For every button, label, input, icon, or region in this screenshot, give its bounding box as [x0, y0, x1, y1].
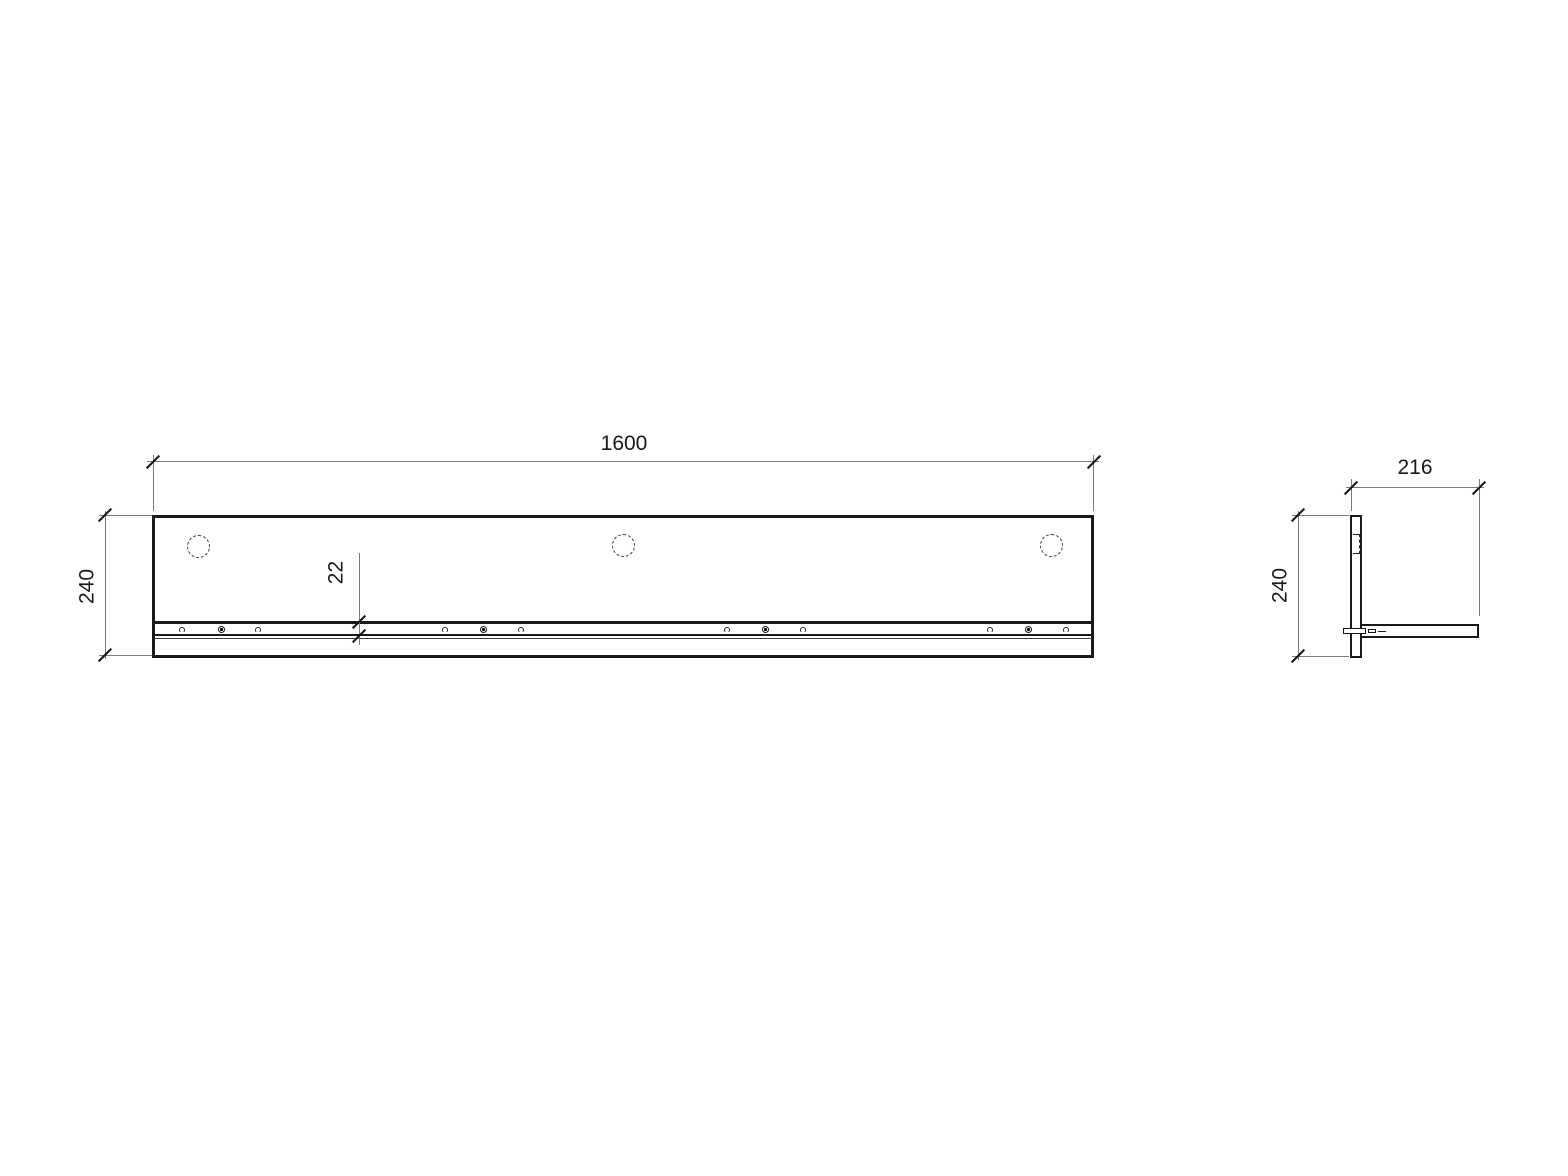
- rail-hole-icon: [1063, 627, 1069, 633]
- extension-line: [1479, 479, 1480, 616]
- rail-screw-icon: [1025, 626, 1032, 633]
- technical-drawing-canvas: 1600 240 22: [0, 0, 1568, 1176]
- shelf-fastener-screw-line: [1378, 631, 1386, 633]
- rail-screw-icon: [762, 626, 769, 633]
- dimension-label-depth: 216: [1375, 457, 1455, 478]
- dimension-line: [105, 511, 106, 659]
- rail-hole-icon: [518, 627, 524, 633]
- shelf-front-bottom-edge: [154, 634, 1092, 637]
- dimension-line: [1298, 511, 1299, 660]
- dimension-line: [1346, 487, 1484, 488]
- shelf-fastener-plate: [1343, 628, 1366, 634]
- keyhole-slot-detail: [1353, 534, 1360, 554]
- extension-line: [1292, 656, 1349, 657]
- shelf-front-top-edge: [154, 621, 1092, 624]
- mount-hole-circle-left: [187, 535, 210, 558]
- mount-hole-circle-center: [612, 534, 635, 557]
- mount-hole-circle-right: [1040, 534, 1063, 557]
- extension-line: [99, 515, 152, 516]
- extension-line: [99, 655, 152, 656]
- dimension-label-width: 1600: [574, 433, 674, 454]
- dimension-line: [359, 553, 360, 645]
- shelf-fastener-cam: [1368, 629, 1376, 633]
- dimension-label-shelf-thickness: 22: [326, 543, 347, 603]
- rail-hole-icon: [255, 627, 261, 633]
- rail-hole-icon: [800, 627, 806, 633]
- rail-hole-icon: [179, 627, 185, 633]
- dimension-label-height: 240: [77, 547, 98, 627]
- extension-line: [1292, 515, 1349, 516]
- rail-screw-icon: [218, 626, 225, 633]
- dimension-label-height-side: 240: [1270, 546, 1291, 626]
- dimension-line: [147, 461, 1099, 462]
- rail-hole-icon: [987, 627, 993, 633]
- rail-hole-icon: [724, 627, 730, 633]
- rail-hole-icon: [442, 627, 448, 633]
- rail-bottom-line: [154, 638, 1092, 640]
- rail-screw-icon: [480, 626, 487, 633]
